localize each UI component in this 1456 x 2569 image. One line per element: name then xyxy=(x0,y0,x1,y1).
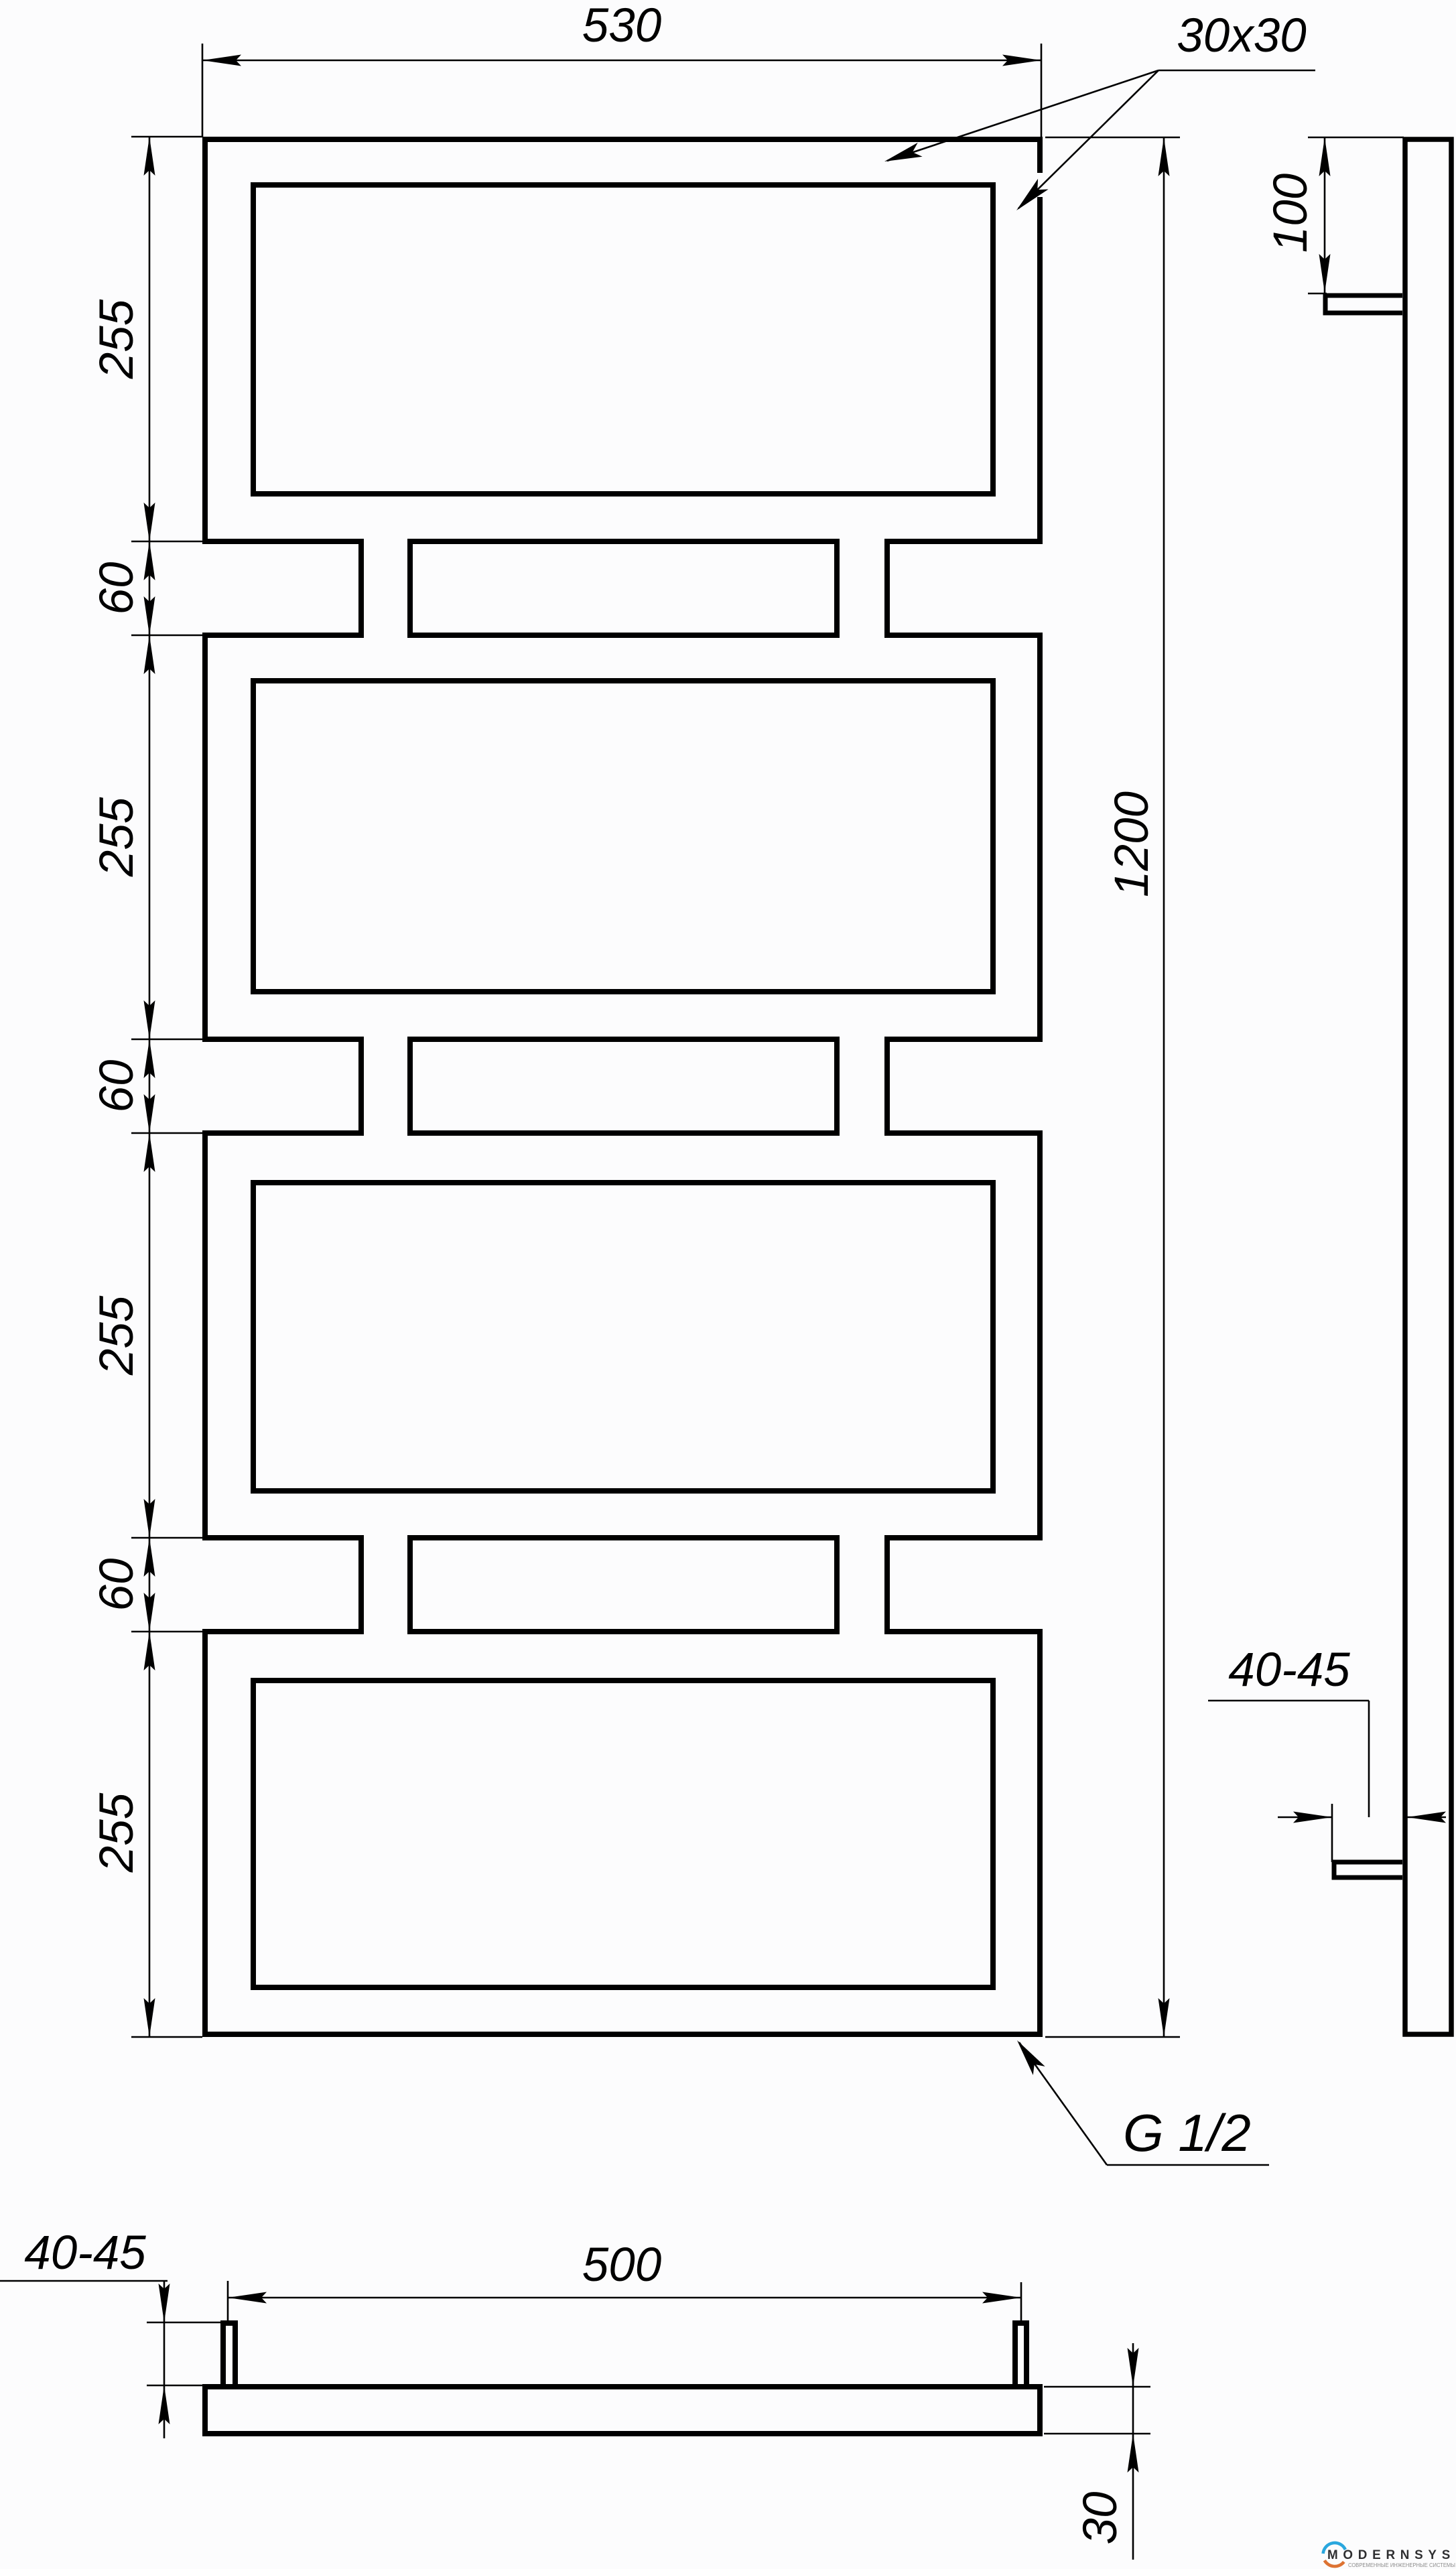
svg-text:30x30: 30x30 xyxy=(1177,9,1306,62)
svg-text:40-45: 40-45 xyxy=(1228,1644,1350,1697)
svg-text:60: 60 xyxy=(90,1559,143,1611)
svg-text:255: 255 xyxy=(90,1792,143,1873)
svg-text:100: 100 xyxy=(1264,174,1317,253)
svg-text:30: 30 xyxy=(1074,2492,1127,2545)
svg-text:500: 500 xyxy=(582,2239,661,2292)
svg-text:40-45: 40-45 xyxy=(24,2227,146,2280)
svg-text:1200: 1200 xyxy=(1106,791,1159,897)
svg-text:255: 255 xyxy=(90,1295,143,1376)
svg-text:G 1/2: G 1/2 xyxy=(1123,2103,1251,2162)
svg-text:255: 255 xyxy=(90,797,143,877)
svg-text:СОВРЕМЕННЫЕ ИНЖЕНЕРНЫЕ СИСТЕМЫ: СОВРЕМЕННЫЕ ИНЖЕНЕРНЫЕ СИСТЕМЫ xyxy=(1348,2562,1455,2568)
svg-text:MODERNSYS: MODERNSYS xyxy=(1327,2548,1455,2562)
svg-text:255: 255 xyxy=(90,299,143,379)
svg-text:60: 60 xyxy=(90,1060,143,1113)
svg-text:60: 60 xyxy=(90,562,143,615)
svg-text:530: 530 xyxy=(582,0,661,52)
